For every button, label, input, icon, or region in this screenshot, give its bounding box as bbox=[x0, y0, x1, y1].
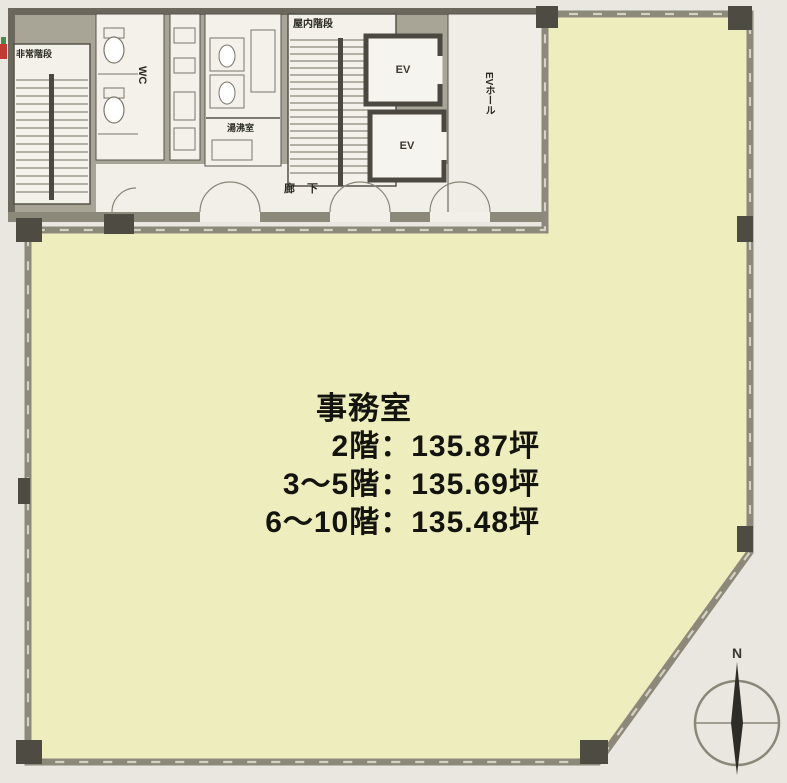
floor-plan: 非常階段 WC 湯沸室 屋内階段 EV EV EVホール 廊下 事務室 2階：1… bbox=[0, 0, 787, 783]
wc-room-1 bbox=[96, 14, 164, 160]
room-label-hot-water: 湯沸室 bbox=[227, 124, 254, 133]
service-core bbox=[8, 8, 548, 222]
office-title: 事務室 bbox=[160, 390, 540, 428]
compass-needle bbox=[731, 662, 743, 775]
office-area-line-1: 2階：135.87坪 bbox=[160, 428, 540, 466]
office-area-text: 事務室 2階：135.87坪 3〜5階：135.69坪 6〜10階：135.48… bbox=[160, 390, 540, 542]
elevator-hall bbox=[448, 14, 545, 218]
office-area-line-2: 3〜5階：135.69坪 bbox=[160, 466, 540, 504]
room-label-wc-1: WC bbox=[136, 66, 147, 84]
room-label-corridor: 廊下 bbox=[284, 184, 330, 195]
office-area-line-3: 6〜10階：135.48坪 bbox=[160, 504, 540, 542]
vanity-block bbox=[170, 14, 200, 160]
room-label-elevator-hall: EVホール bbox=[483, 72, 493, 115]
wc-room-2 bbox=[205, 14, 281, 166]
emergency-stairs bbox=[14, 44, 90, 204]
compass-north-label: N bbox=[722, 645, 752, 661]
room-label-emergency-stairs: 非常階段 bbox=[16, 50, 52, 59]
compass bbox=[695, 662, 779, 775]
room-label-elevator-1: EV bbox=[366, 64, 440, 76]
room-label-indoor-stairs: 屋内階段 bbox=[293, 20, 333, 30]
room-label-elevator-2: EV bbox=[370, 140, 444, 152]
edge-marks bbox=[0, 37, 7, 59]
